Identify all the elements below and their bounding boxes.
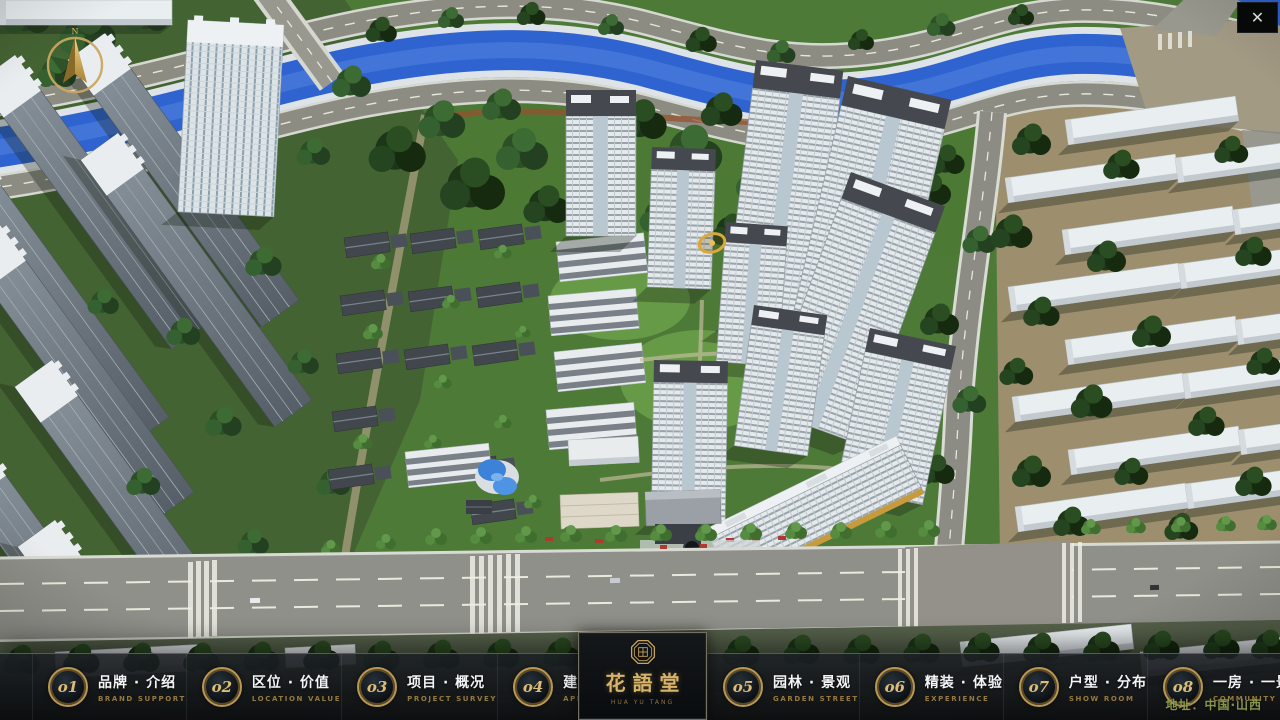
nav-medallion-icon: o6 bbox=[875, 667, 915, 707]
brand-title: 花語堂 bbox=[599, 667, 687, 696]
nav-label-en: GARDEN STREET bbox=[773, 695, 859, 703]
nav-item-garden-landscape[interactable]: o5 园林 · 景观GARDEN STREET bbox=[707, 654, 859, 720]
brand-subtitle: HUA YU TANG bbox=[611, 699, 674, 706]
nav-number: o7 bbox=[1029, 678, 1049, 696]
nav-label-zh: 品牌 · 介绍 bbox=[98, 672, 186, 692]
nav-medallion-icon: o1 bbox=[48, 667, 88, 707]
nav-medallion-icon: o2 bbox=[202, 667, 242, 707]
nav-label-zh: 户型 · 分布 bbox=[1069, 672, 1147, 692]
nav-label-zh: 项目 · 概况 bbox=[407, 672, 497, 692]
compass-north-label: N bbox=[72, 27, 79, 36]
nav-number: o8 bbox=[1173, 678, 1193, 696]
nav-number: o5 bbox=[733, 678, 753, 696]
vignette bbox=[0, 0, 1280, 720]
nav-number: o3 bbox=[367, 678, 387, 696]
nav-medallion-icon: o4 bbox=[513, 667, 553, 707]
nav-label-zh: 一房 · 一景 bbox=[1213, 672, 1280, 692]
nav-number: o2 bbox=[212, 678, 232, 696]
nav-item-brand-intro[interactable]: o1 品牌 · 介绍BRAND SUPPORT bbox=[32, 654, 186, 720]
compass: N bbox=[38, 24, 112, 100]
nav-medallion-icon: o5 bbox=[723, 667, 763, 707]
nav-number: o1 bbox=[58, 678, 78, 696]
nav-medallion-icon: o7 bbox=[1019, 667, 1059, 707]
nav-item-project-survey[interactable]: o3 项目 · 概况PROJECT SURVEY bbox=[341, 654, 497, 720]
nav-label-en: EXPERIENCE bbox=[925, 695, 1003, 703]
nav-medallion-icon: o3 bbox=[357, 667, 397, 707]
nav-label-zh: 精装 · 体验 bbox=[925, 672, 1003, 692]
nav-label-en: LOCATION VALUE bbox=[252, 695, 341, 703]
nav-group-left: o1 品牌 · 介绍BRAND SUPPORT o2 区位 · 价值LOCATI… bbox=[0, 654, 578, 720]
brand-seal-icon bbox=[630, 639, 656, 665]
nav-number: o4 bbox=[523, 678, 543, 696]
nav-label-en: SHOW ROOM bbox=[1069, 695, 1147, 703]
nav-item-floorplan-distribution[interactable]: o7 户型 · 分布SHOW ROOM bbox=[1003, 654, 1147, 720]
nav-label-en: PROJECT SURVEY bbox=[407, 695, 497, 703]
aerial-site-render bbox=[0, 0, 1280, 720]
address-text: 地址：中国·山西 bbox=[1165, 696, 1262, 713]
close-button[interactable]: ✕ bbox=[1237, 2, 1278, 33]
nav-item-interior-experience[interactable]: o6 精装 · 体验EXPERIENCE bbox=[859, 654, 1003, 720]
nav-number: o6 bbox=[885, 678, 905, 696]
close-icon: ✕ bbox=[1251, 8, 1264, 27]
brand-logo-panel[interactable]: 花語堂 HUA YU TANG bbox=[578, 632, 707, 720]
nav-label-zh: 园林 · 景观 bbox=[773, 672, 859, 692]
nav-label-en: BRAND SUPPORT bbox=[98, 695, 186, 703]
app-window: N ✕ o1 品牌 · 介绍BRAND SUPPORT o2 区位 · 价值LO… bbox=[0, 0, 1280, 720]
nav-label-zh: 区位 · 价值 bbox=[252, 672, 341, 692]
nav-item-location-value[interactable]: o2 区位 · 价值LOCATION VALUE bbox=[186, 654, 341, 720]
